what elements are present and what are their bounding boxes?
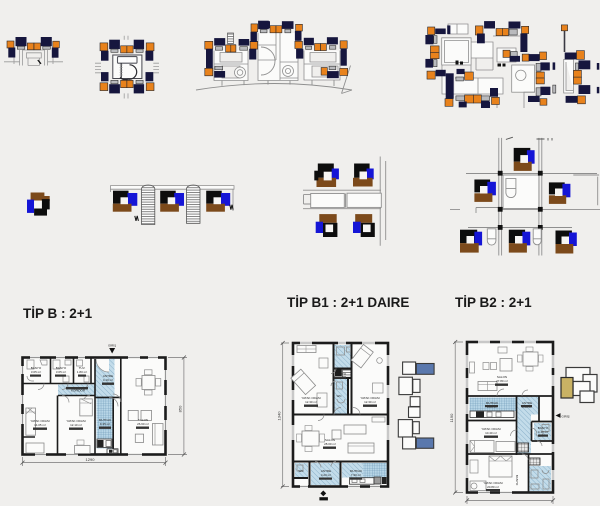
svg-text:WC: WC bbox=[337, 394, 343, 398]
svg-text:4.10 m²: 4.10 m² bbox=[538, 430, 548, 434]
svg-text:TİP B : 2+1: TİP B : 2+1 bbox=[23, 306, 93, 321]
svg-text:TİP B1 : 2+1 DAIRE: TİP B1 : 2+1 DAIRE bbox=[287, 295, 409, 310]
svg-text:9.35 m²: 9.35 m² bbox=[100, 422, 110, 426]
svg-text:GİRİŞ: GİRİŞ bbox=[108, 343, 116, 348]
svg-text:1.80 m²: 1.80 m² bbox=[77, 370, 87, 374]
svg-text:14.05 m²: 14.05 m² bbox=[34, 423, 46, 427]
svg-text:TİP B2 : 2+1: TİP B2 : 2+1 bbox=[455, 295, 532, 310]
svg-text:20.80 m²: 20.80 m² bbox=[487, 485, 499, 489]
svg-text:BANYO: BANYO bbox=[515, 475, 519, 486]
svg-text:1290: 1290 bbox=[86, 457, 96, 462]
svg-text:26.60 m²: 26.60 m² bbox=[137, 422, 149, 426]
svg-text:28.00 m²: 28.00 m² bbox=[324, 442, 336, 446]
svg-text:3.65 m²: 3.65 m² bbox=[31, 370, 41, 374]
svg-text:7.90 m²: 7.90 m² bbox=[351, 473, 361, 477]
svg-text:1340: 1340 bbox=[277, 411, 282, 421]
svg-text:4.10 m²: 4.10 m² bbox=[103, 378, 113, 382]
svg-text:12.10 m²: 12.10 m² bbox=[70, 423, 82, 427]
svg-text:12.30 m²: 12.30 m² bbox=[305, 400, 317, 404]
svg-text:BANYO: BANYO bbox=[336, 372, 347, 376]
svg-text:12.30 m²: 12.30 m² bbox=[364, 400, 376, 404]
svg-text:3.65 m²: 3.65 m² bbox=[56, 370, 66, 374]
svg-text:27.80 m²: 27.80 m² bbox=[496, 379, 508, 383]
svg-text:4.20 m²: 4.20 m² bbox=[321, 473, 331, 477]
svg-text:1190: 1190 bbox=[449, 413, 454, 422]
svg-text:850: 850 bbox=[178, 405, 183, 412]
svg-text:10.40 m²: 10.40 m² bbox=[485, 431, 497, 435]
svg-text:GİRİŞ: GİRİŞ bbox=[562, 413, 570, 418]
svg-text:WC: WC bbox=[299, 469, 305, 473]
